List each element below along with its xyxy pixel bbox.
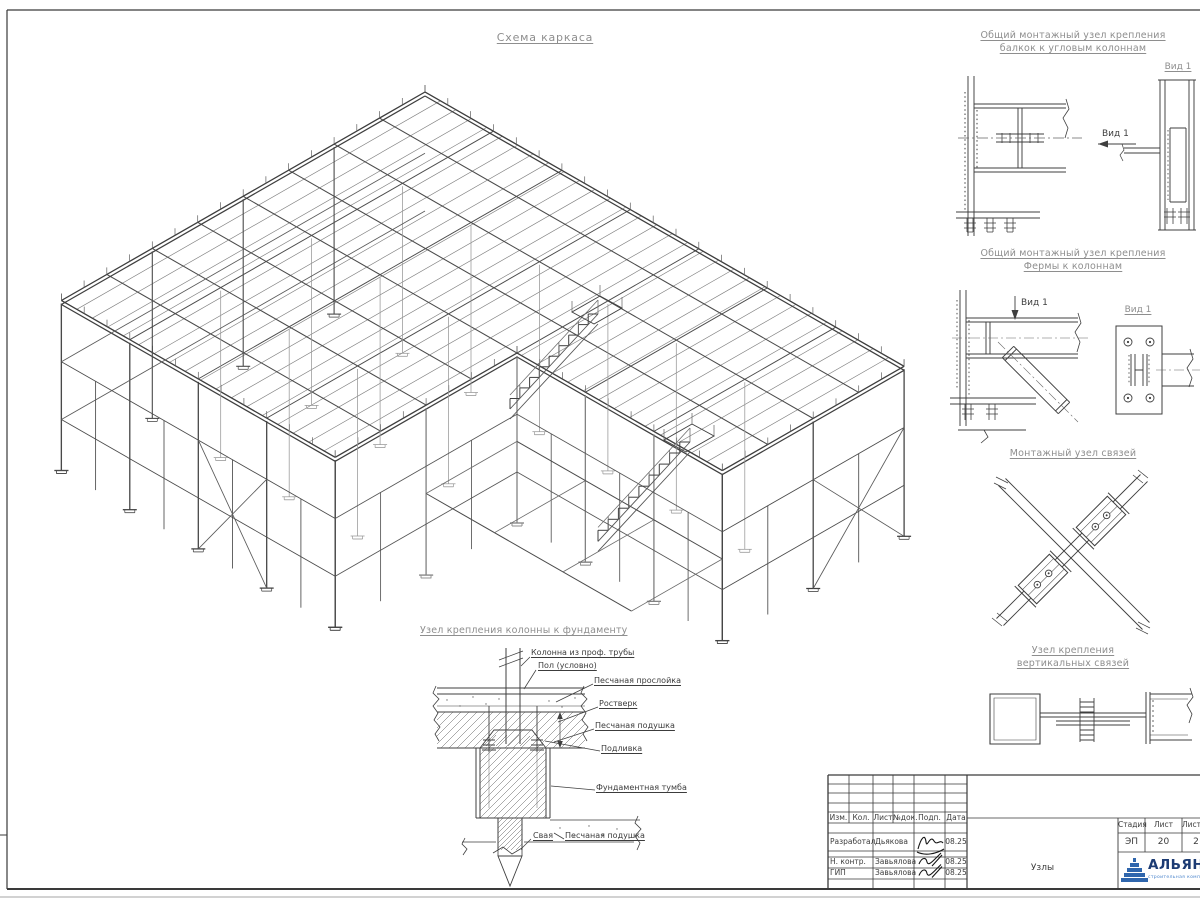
- label-sand-cushion: Песчаная подушка: [595, 721, 675, 730]
- foundation-title: Узел крепления колонны к фундаменту: [420, 626, 625, 637]
- tb-col-list: Лист: [873, 814, 893, 823]
- company-logo-subtext: строительная компания: [1148, 875, 1200, 880]
- tb-col-ndok: №док.: [893, 814, 914, 823]
- signature-dyakova: [917, 837, 944, 854]
- label-column: Колонна из проф. трубы: [531, 648, 634, 657]
- label-sand-layer: Песчаная прослойка: [594, 676, 681, 685]
- detail1-view-title: Вид 1: [1154, 62, 1200, 72]
- tb-row2-date: 08.25: [945, 858, 967, 867]
- label-pedestal: Фундаментная тумба: [596, 783, 687, 792]
- tb-stage-label: Стадия: [1118, 821, 1145, 830]
- main-title: Схема каркаса: [440, 32, 650, 45]
- detail-beam-corner-view1: [1120, 80, 1196, 230]
- detail4-title-line1: Узел крепления: [943, 646, 1200, 657]
- label-grillage: Ростверк: [599, 699, 637, 708]
- detail2-view-title: Вид 1: [1114, 305, 1162, 315]
- tb-col-podp: Подп.: [914, 814, 945, 823]
- signature-zavyalova-2: [919, 865, 942, 878]
- tb-col-izm: Изм.: [828, 814, 849, 823]
- detail-truss-to-column: [950, 290, 1088, 443]
- signatures: [917, 837, 944, 877]
- tb-doc-name: Узлы: [967, 863, 1118, 873]
- tb-row1-name: Дьякова: [875, 838, 908, 847]
- company-logo-text: АЛЬЯНС: [1148, 858, 1200, 874]
- label-floor: Пол (условно): [538, 661, 597, 670]
- detail2-title-line1: Общий монтажный узел крепления: [943, 249, 1200, 260]
- detail4-title-line2: вертикальных связей: [943, 659, 1200, 670]
- detail1-view-arrow-label: Вид 1: [1102, 129, 1129, 139]
- tb-col-kol: Кол.: [849, 814, 873, 823]
- tb-sheet-label: Лист: [1145, 821, 1182, 830]
- tb-row1-role: Разработал: [830, 838, 875, 847]
- label-sand-cushion-2: Песчаная подушка: [565, 831, 645, 840]
- label-grout: Подливка: [601, 744, 642, 753]
- detail-vertical-brace-node: [990, 688, 1193, 744]
- tb-row2-name: Завьялова: [875, 858, 916, 867]
- tb-col-data: Дата: [945, 814, 967, 823]
- isometric-frame-drawing: [54, 85, 911, 644]
- detail2-view-arrow-label: Вид 1: [1021, 298, 1048, 308]
- tb-stage-value: ЭП: [1118, 837, 1145, 847]
- blueprint-sheet: Схема каркаса Общий монтажный узел крепл…: [0, 0, 1200, 900]
- label-pile: Свая: [533, 831, 553, 840]
- company-logo-icon: [1121, 858, 1148, 882]
- tb-row3-name: Завьялова: [875, 869, 916, 878]
- detail3-title: Монтажный узел связей: [943, 449, 1200, 460]
- detail1-title-line1: Общий монтажный узел крепления: [943, 31, 1200, 42]
- tb-sheets-value: 2: [1182, 837, 1200, 847]
- tb-row1-date: 08.25: [945, 838, 967, 847]
- tb-row3-date: 08.25: [945, 869, 967, 878]
- tb-row3-role: ГИП: [830, 869, 846, 878]
- detail-beam-to-corner-column: [956, 76, 1136, 236]
- detail2-title-line2: Фермы к колоннам: [943, 262, 1200, 273]
- signature-zavyalova-1: [919, 853, 942, 866]
- tb-sheets-label: Листов: [1182, 821, 1200, 830]
- detail-brace-node: [992, 470, 1150, 634]
- tb-sheet-value: 20: [1145, 837, 1182, 847]
- tb-row2-role: Н. контр.: [830, 858, 866, 867]
- concrete-speckle: [446, 696, 629, 838]
- detail-truss-view1: [1116, 326, 1200, 414]
- detail1-title-line2: балкок к угловым колоннам: [943, 44, 1200, 55]
